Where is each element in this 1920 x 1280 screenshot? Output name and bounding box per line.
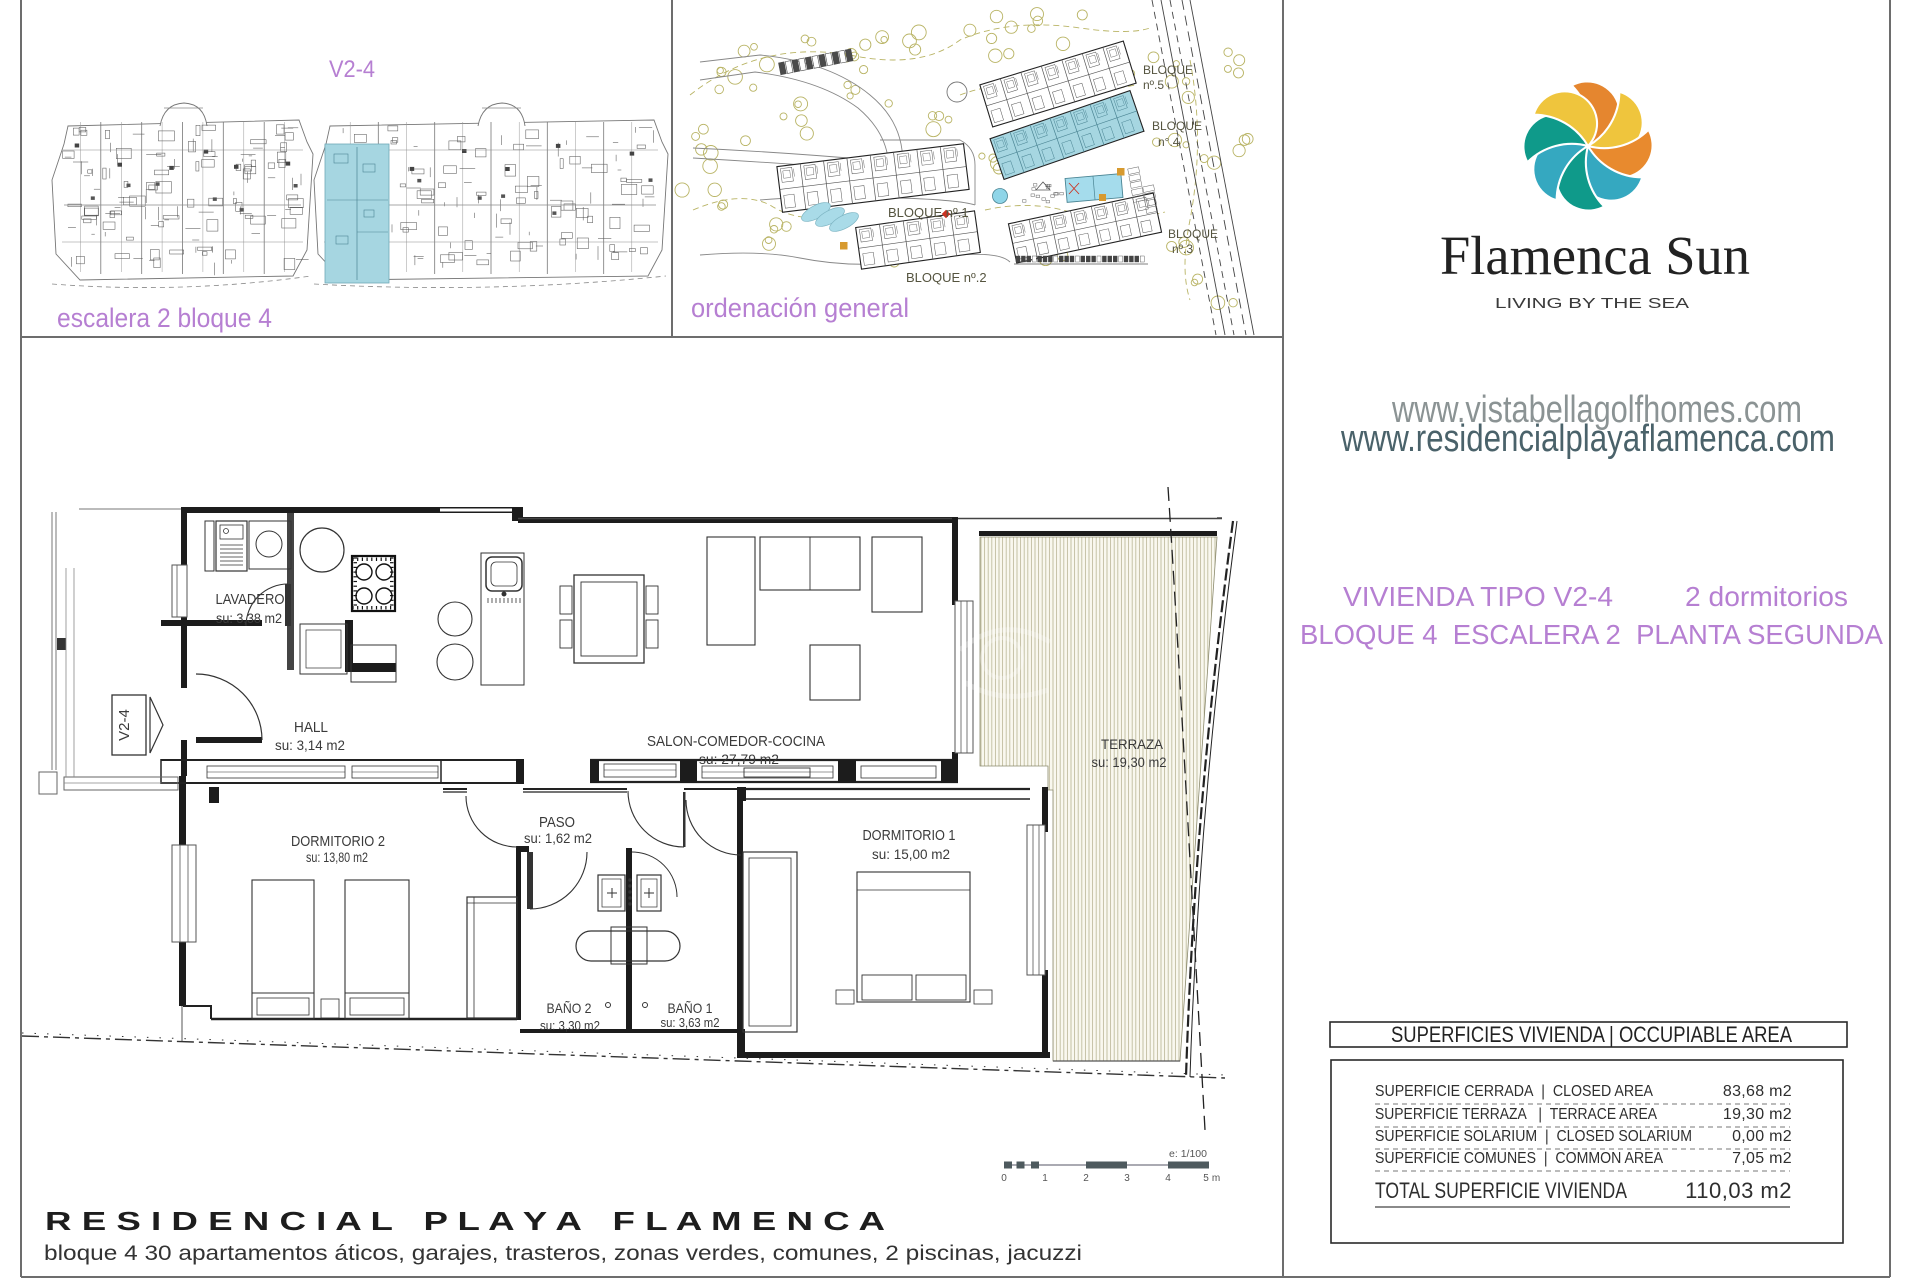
svg-text:R E S I D E N C I A L P L A: R E S I D E N C I A L P L A Y A F L A M … — [45, 1206, 885, 1236]
svg-text:su: 15,00 m2: su: 15,00 m2 — [872, 847, 950, 862]
svg-text:n°.4: n°.4 — [1158, 135, 1180, 149]
svg-text:su: 3,63 m2: su: 3,63 m2 — [661, 1015, 720, 1030]
svg-text:BAÑO 1: BAÑO 1 — [668, 1000, 713, 1016]
svg-text:BLOQUE 4 ESCALERA 2 PLANTA S: BLOQUE 4 ESCALERA 2 PLANTA SEGUNDA — [1300, 619, 1883, 650]
svg-text:e: 1/100: e: 1/100 — [1169, 1148, 1207, 1160]
svg-text:LAVADERO: LAVADERO — [216, 591, 285, 608]
svg-text:bloque 4 30 apartamentos ático: bloque 4 30 apartamentos áticos, garajes… — [44, 1242, 1082, 1265]
svg-text:su: 27,79 m2: su: 27,79 m2 — [699, 751, 779, 767]
svg-text:19,30 m2: 19,30 m2 — [1723, 1106, 1792, 1123]
svg-text:83,68 m2: 83,68 m2 — [1723, 1083, 1792, 1100]
svg-text:2 dormitorios: 2 dormitorios — [1685, 581, 1848, 612]
svg-text:su: 19,30 m2: su: 19,30 m2 — [1092, 755, 1167, 770]
svg-text:5: 5 — [1203, 1173, 1209, 1184]
svg-text:Flamenca Sun: Flamenca Sun — [1440, 225, 1750, 286]
svg-text:BLOQUE: BLOQUE — [1168, 227, 1218, 241]
svg-text:HALL: HALL — [294, 719, 328, 736]
svg-text:DORMITORIO 2: DORMITORIO 2 — [291, 833, 385, 850]
svg-text:SUPERFICIES VIVIENDA | OCCUPIA: SUPERFICIES VIVIENDA | OCCUPIABLE AREA — [1391, 1022, 1792, 1047]
svg-text:escalera 2 bloque 4: escalera 2 bloque 4 — [57, 303, 272, 333]
svg-text:SUPERFICIE SOLARIUM | CLOSED: SUPERFICIE SOLARIUM | CLOSED SOLARIUM — [1375, 1128, 1692, 1145]
svg-text:su: 3,30 m2: su: 3,30 m2 — [540, 1018, 600, 1033]
svg-text:0,00 m2: 0,00 m2 — [1732, 1128, 1792, 1145]
svg-text:PASO: PASO — [539, 814, 575, 831]
svg-text:4: 4 — [1165, 1173, 1171, 1184]
svg-text:www.residencialplayaflamenca.c: www.residencialplayaflamenca.com — [1340, 418, 1835, 460]
svg-text:m: m — [1212, 1173, 1220, 1184]
svg-text:2: 2 — [1083, 1173, 1089, 1184]
svg-text:7,05 m2: 7,05 m2 — [1732, 1150, 1792, 1167]
svg-text:LIVING BY THE SEA: LIVING BY THE SEA — [1495, 296, 1689, 312]
svg-text:su: 1,62 m2: su: 1,62 m2 — [524, 831, 592, 846]
svg-text:ordenación general: ordenación general — [691, 293, 909, 323]
svg-text:BLOQUE nº.1: BLOQUE nº.1 — [888, 205, 969, 220]
svg-text:SALON-COMEDOR-COCINA: SALON-COMEDOR-COCINA — [647, 733, 825, 750]
svg-text:V2-4: V2-4 — [116, 709, 133, 741]
svg-text:su: 13,80 m2: su: 13,80 m2 — [306, 850, 368, 865]
svg-text:1: 1 — [1042, 1173, 1048, 1184]
svg-text:TERRAZA: TERRAZA — [1101, 736, 1164, 752]
svg-text:DORMITORIO 1: DORMITORIO 1 — [863, 827, 956, 844]
svg-text:su: 3,14 m2: su: 3,14 m2 — [275, 737, 345, 753]
svg-text:V2-4: V2-4 — [329, 56, 375, 83]
svg-text:SUPERFICIE COMUNES | COMMON: SUPERFICIE COMUNES | COMMON AREA — [1375, 1150, 1663, 1167]
svg-text:BLOQUE: BLOQUE — [1143, 63, 1193, 77]
svg-text:VIVIENDA TIPO V2-4: VIVIENDA TIPO V2-4 — [1343, 581, 1613, 612]
svg-text:0: 0 — [1001, 1173, 1007, 1184]
svg-text:su: 3,38 m2: su: 3,38 m2 — [216, 610, 282, 626]
svg-text:SUPERFICIE CERRADA | CLOSED: SUPERFICIE CERRADA | CLOSED AREA — [1375, 1083, 1653, 1100]
svg-text:BLOQUE nº.2: BLOQUE nº.2 — [906, 270, 987, 285]
svg-text:110,03 m2: 110,03 m2 — [1685, 1178, 1792, 1203]
svg-text:nº.3: nº.3 — [1172, 242, 1193, 256]
svg-text:nº.5: nº.5 — [1143, 78, 1164, 92]
svg-text:BLOQUE: BLOQUE — [1152, 119, 1202, 133]
svg-text:SUPERFICIE TERRAZA | TERRAC: SUPERFICIE TERRAZA | TERRACE AREA — [1375, 1106, 1657, 1123]
svg-text:BAÑO 2: BAÑO 2 — [547, 1000, 592, 1016]
svg-text:TOTAL SUPERFICIE VIVIENDA: TOTAL SUPERFICIE VIVIENDA — [1375, 1178, 1627, 1203]
svg-text:3: 3 — [1124, 1173, 1130, 1184]
